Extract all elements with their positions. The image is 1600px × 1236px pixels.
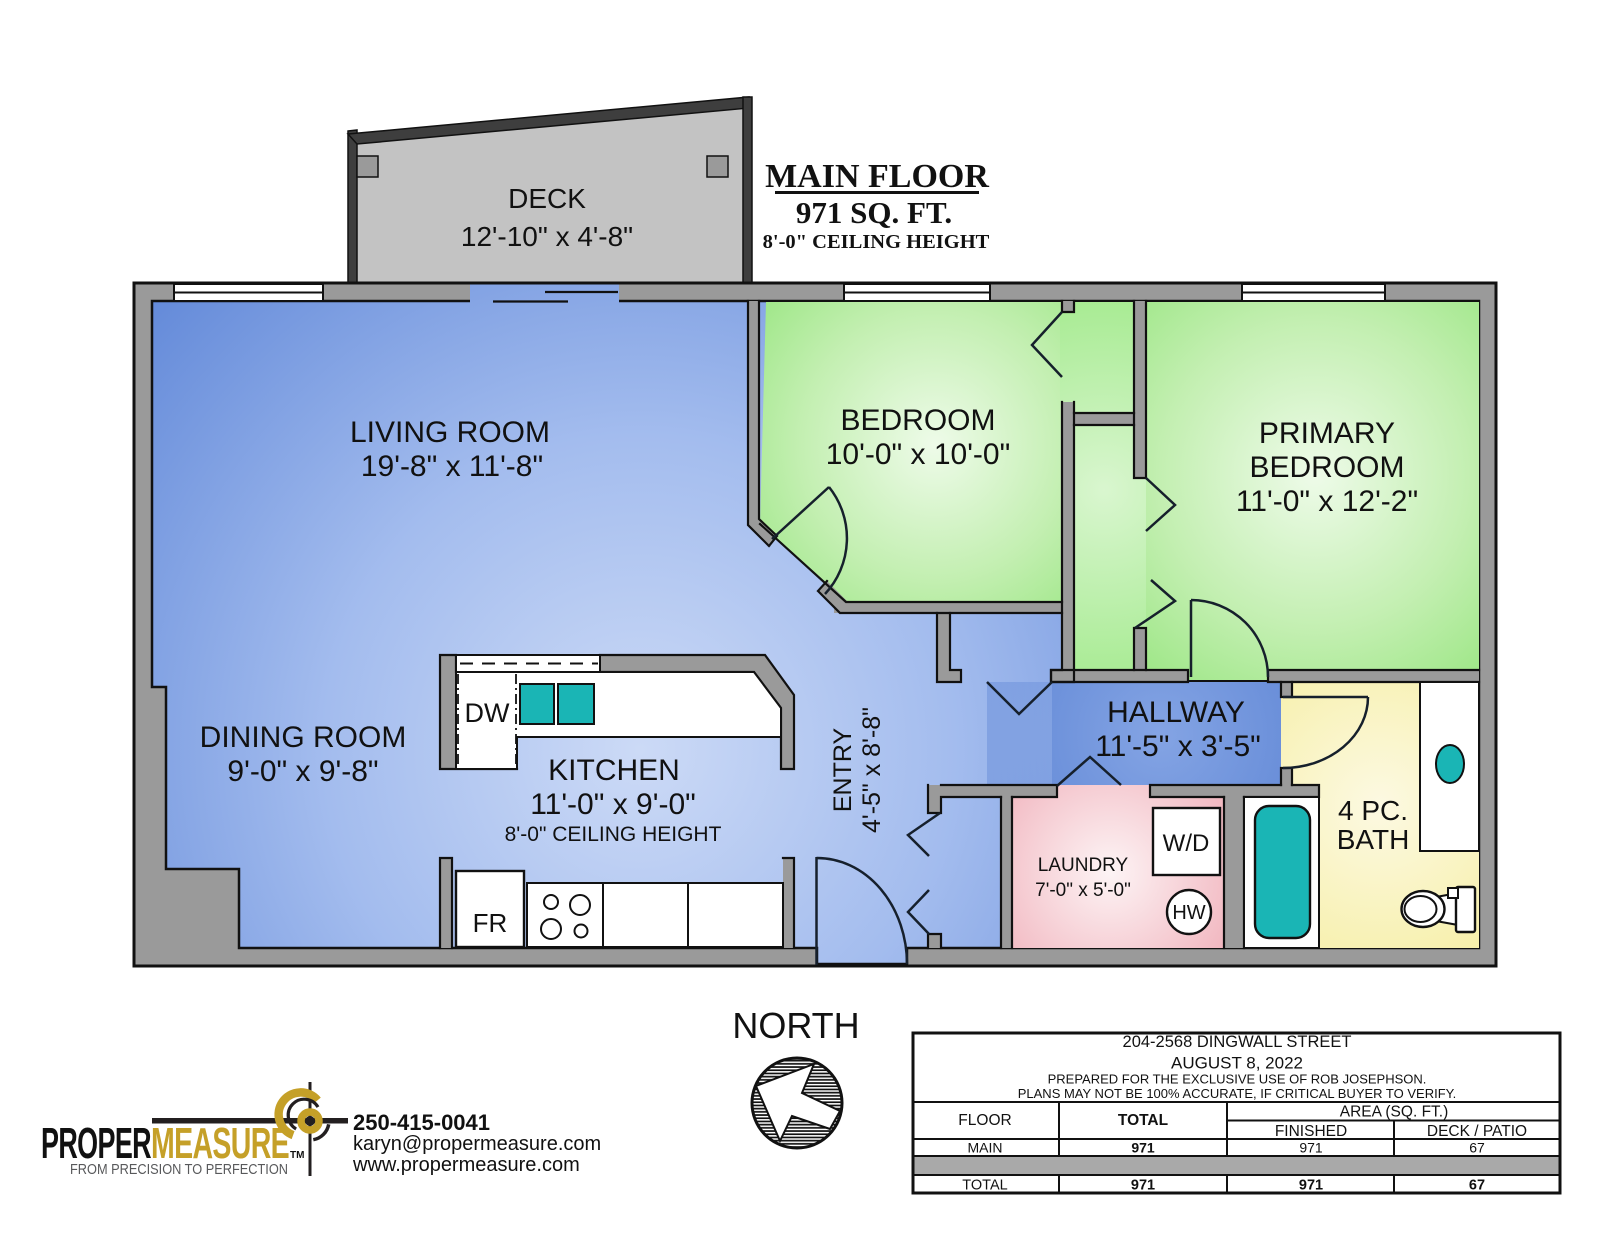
svg-text:FLOOR: FLOOR <box>958 1112 1011 1129</box>
svg-text:250-415-0041: 250-415-0041 <box>353 1110 490 1135</box>
svg-text:HW: HW <box>1172 902 1205 924</box>
svg-text:DW: DW <box>465 698 510 728</box>
svg-text:PLANS MAY NOT BE 100% ACCURATE: PLANS MAY NOT BE 100% ACCURATE, IF CRITI… <box>1018 1086 1457 1101</box>
svg-text:DINING ROOM: DINING ROOM <box>200 721 407 754</box>
svg-text:LAUNDRY: LAUNDRY <box>1038 855 1129 876</box>
svg-text:LIVING ROOM: LIVING ROOM <box>350 416 550 449</box>
svg-text:TOTAL: TOTAL <box>962 1178 1007 1194</box>
svg-text:AUGUST 8, 2022: AUGUST 8, 2022 <box>1171 1054 1303 1073</box>
svg-text:MAIN FLOOR: MAIN FLOOR <box>765 158 989 195</box>
svg-text:204-2568 DINGWALL STREET: 204-2568 DINGWALL STREET <box>1123 1033 1352 1051</box>
svg-text:NORTH: NORTH <box>732 1005 859 1046</box>
svg-text:TOTAL: TOTAL <box>1118 1112 1168 1129</box>
svg-text:11'-0" x 9'-0": 11'-0" x 9'-0" <box>530 788 696 821</box>
svg-text:67: 67 <box>1469 1140 1485 1156</box>
svg-text:11'-5" x 3'-5": 11'-5" x 3'-5" <box>1095 730 1261 763</box>
svg-text:4 PC.: 4 PC. <box>1338 795 1408 826</box>
svg-text:MAIN: MAIN <box>968 1140 1003 1156</box>
svg-text:10'-0" x 10'-0": 10'-0" x 10'-0" <box>826 438 1011 471</box>
svg-text:DECK / PATIO: DECK / PATIO <box>1427 1123 1527 1140</box>
svg-text:971: 971 <box>1131 1140 1155 1156</box>
svg-text:HALLWAY: HALLWAY <box>1107 696 1245 729</box>
svg-text:www.propermeasure.com: www.propermeasure.com <box>352 1154 580 1176</box>
svg-text:W/D: W/D <box>1163 830 1210 857</box>
svg-text:971: 971 <box>1299 1178 1323 1194</box>
svg-text:19'-8" x 11'-8": 19'-8" x 11'-8" <box>361 450 543 483</box>
svg-text:PREPARED FOR THE EXCLUSIVE USE: PREPARED FOR THE EXCLUSIVE USE OF ROB JO… <box>1048 1072 1427 1087</box>
svg-text:971 SQ. FT.: 971 SQ. FT. <box>796 195 952 230</box>
svg-text:FR: FR <box>473 908 508 938</box>
svg-text:4'-5" x 8'-8": 4'-5" x 8'-8" <box>858 707 886 833</box>
svg-text:FROM PRECISION TO PERFECTION: FROM PRECISION TO PERFECTION <box>70 1161 288 1178</box>
svg-text:BATH: BATH <box>1337 824 1410 855</box>
svg-text:971: 971 <box>1131 1178 1155 1194</box>
svg-text:BEDROOM: BEDROOM <box>840 404 995 437</box>
svg-text:8'-0" CEILING HEIGHT: 8'-0" CEILING HEIGHT <box>763 231 990 253</box>
svg-text:BEDROOM: BEDROOM <box>1249 451 1404 484</box>
svg-text:ENTRY: ENTRY <box>829 728 857 813</box>
svg-text:TM: TM <box>290 1150 304 1161</box>
svg-text:7'-0" x 5'-0": 7'-0" x 5'-0" <box>1035 880 1131 901</box>
svg-text:PRIMARY: PRIMARY <box>1259 417 1395 450</box>
svg-text:DECK: DECK <box>508 183 586 214</box>
svg-text:AREA (SQ. FT.): AREA (SQ. FT.) <box>1340 1104 1449 1121</box>
svg-text:KITCHEN: KITCHEN <box>548 754 680 787</box>
svg-text:12'-10" x 4'-8": 12'-10" x 4'-8" <box>461 221 633 252</box>
svg-text:8'-0" CEILING HEIGHT: 8'-0" CEILING HEIGHT <box>505 823 722 846</box>
svg-text:11'-0" x 12'-2": 11'-0" x 12'-2" <box>1236 485 1418 518</box>
svg-text:971: 971 <box>1299 1140 1323 1156</box>
svg-text:67: 67 <box>1469 1178 1485 1194</box>
svg-text:9'-0" x 9'-8": 9'-0" x 9'-8" <box>227 755 378 788</box>
svg-text:FINISHED: FINISHED <box>1275 1123 1347 1140</box>
svg-text:karyn@propermeasure.com: karyn@propermeasure.com <box>353 1133 601 1155</box>
